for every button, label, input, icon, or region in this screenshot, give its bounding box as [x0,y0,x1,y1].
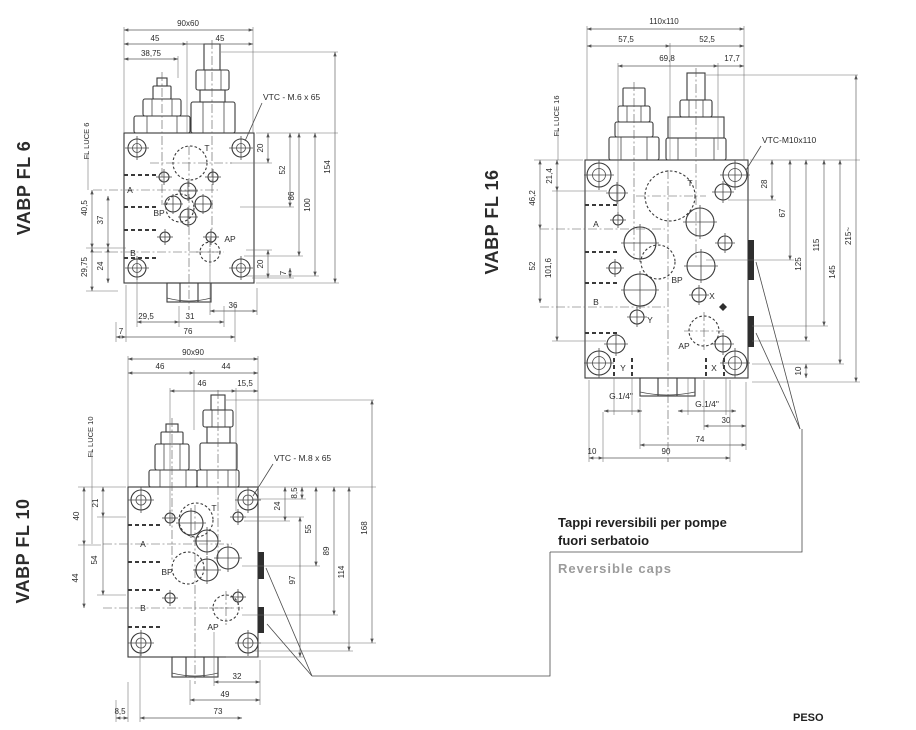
fl16-port-y: Y [647,315,653,325]
dim-label: 97 [288,575,297,584]
drawing-fl6: VABP FL 6 FL LUCE 6 [14,19,339,342]
dim-label: 101,6 [544,257,553,278]
fl6-port-b: B [130,248,136,258]
fl6-mount-hole [125,256,149,280]
fl6-left-dims: 40,5 37 29,75 24 [80,190,126,291]
fl6-port-a: A [127,185,133,195]
fl16-port-bp: BP [671,275,683,285]
dim-label: 37 [96,215,105,224]
dim-label: 30 [722,416,731,425]
fl10-cartridge-right [197,390,239,560]
fl10-port-bp: BP [161,567,173,577]
fl16-cross-hole [689,285,709,305]
fl16-vtc-label: VTC-M10x110 [762,135,816,145]
dim-label: 8,5 [114,707,126,716]
fl10-hole [176,508,206,538]
dim-label: 154 [323,160,332,174]
fl10-title: VABP FL 10 [13,498,33,603]
fl16-luce-label: FL LUCE 16 [552,96,561,137]
dim-label: 10 [588,447,597,456]
fl10-reversible-cap [258,552,264,579]
dim-label: 90 [662,447,671,456]
fl6-right-dims: 20 52 86 100 154 20 7 [230,52,339,283]
dim-label: 46,2 [528,190,537,206]
fl16-ring-hole [604,332,628,356]
dim-label: 24 [273,501,282,510]
fl10-mount-hole [235,487,261,513]
fl10-port-t-circle [179,503,213,537]
fl6-mount-hole [229,136,253,160]
dim-label: 21,4 [545,168,554,184]
fl16-cross-hole [627,307,647,327]
dim-label: 67 [778,208,787,217]
callout-text-italian-line2: fuori serbatoio [558,533,649,548]
dim-label: 90x60 [177,19,199,28]
fl16-port-x: X [709,291,715,301]
fl6-bp-cluster [163,181,213,227]
drawing-fl16: VABP FL 16 FL LUCE 16 [482,17,860,462]
fl16-cross-hole [606,259,624,277]
dim-label: 8,5 [290,487,299,499]
dim-label: 54 [90,555,99,564]
fl16-dot [719,303,727,311]
fl10-cross-hole [162,590,178,606]
fl10-port-bp-circle [172,552,204,584]
fl6-port-t: T [204,143,209,153]
peso-label: PESO [793,712,824,724]
datasheet-page: VABP FL 6 FL LUCE 6 [0,0,916,730]
dim-label: 110x110 [649,17,679,26]
fl16-cartridge-left [609,82,659,260]
fl10-port-t: T [211,503,216,513]
fl10-port-b: B [140,603,146,613]
fl16-left-dims: 21,4 46,2 52 101,6 [528,160,607,341]
fl16-reversible-cap [748,316,754,347]
dim-label: 28 [760,179,769,188]
fl10-vtc-label: VTC - M.8 x 65 [274,453,331,463]
callout-text-italian-line1: Tappi reversibili per pompe [558,515,727,530]
fl10-port-a: A [140,539,146,549]
fl6-luce-label: FL LUCE 6 [82,123,91,160]
fl10-right-dims: 8,5 24 55 89 97 114 168 [226,400,376,657]
dim-label: 7 [119,327,124,336]
dim-label: 29,5 [138,312,154,321]
dim-label: 24 [96,261,105,270]
fl16-hole [621,224,659,262]
fl16-port-ap: AP [678,341,690,351]
dim-label: 57,5 [618,35,634,44]
technical-drawing-canvas: VABP FL 6 FL LUCE 6 [0,0,916,730]
fl16-right-dims: 28 67 115 125 145 215~ 10 [706,75,860,382]
fl16-port-bp-circle [641,245,675,279]
fl16-title: VABP FL 16 [482,169,502,274]
dim-label: 46 [156,362,165,371]
fl6-cartridge-left [134,72,190,205]
fl10-reversible-cap [258,607,264,633]
dim-label: 145 [828,265,837,279]
dim-label: 55 [304,524,313,533]
dim-label: 52,5 [699,35,715,44]
fl6-cross-hole [156,169,172,185]
dim-label: 20 [256,259,265,268]
dim-label: 38,75 [141,49,162,58]
fl6-vtc-callout: VTC - M.6 x 65 [245,92,320,141]
fl6-valve-body [93,133,254,310]
fl16-hole [621,271,659,309]
dim-label: 7 [279,270,288,275]
dim-label: 46 [198,379,207,388]
fl10-hole [193,527,221,555]
fl16-port-y-bottom: Y [620,363,626,373]
fl16-hole [684,249,718,283]
dim-label: 89 [322,546,331,555]
dim-label: 40,5 [80,200,89,216]
dim-label: 15,5 [237,379,253,388]
dim-label: 73 [214,707,223,716]
dim-label: 114 [337,565,346,578]
dim-label: 31 [186,312,195,321]
dim-label: 44 [222,362,231,371]
dim-label: 45 [151,34,160,43]
fl6-mount-hole [125,136,149,160]
fl6-port-ap: AP [224,234,236,244]
dim-label: 20 [256,143,265,152]
fl16-port-t: T [687,178,692,188]
dim-label: 21 [91,498,100,507]
fl16-mount-hole [584,160,614,190]
fl6-vtc-label: VTC - M.6 x 65 [263,92,320,102]
fl16-mount-hole [720,160,750,190]
reversible-caps-callout: Tappi reversibili per pompe fuori serbat… [266,262,802,676]
dim-label: 90x90 [182,348,204,357]
fl10-mount-hole [128,487,154,513]
drawing-fl10: VABP FL 10 FL LUCE 10 [13,348,376,722]
dim-label: 52 [528,261,537,270]
fl16-port-x-bottom: X [711,363,717,373]
fl10-cross-hole [162,510,178,526]
fl6-title: VABP FL 6 [14,141,34,236]
callout-text-english: Reversible caps [558,561,672,576]
fl6-cartridge-right [191,40,235,230]
fl16-ring-hole [606,182,628,204]
fl10-mount-hole [235,630,261,656]
fl16-port-a: A [593,219,599,229]
fl10-luce-label: FL LUCE 10 [86,417,95,458]
fl10-cartridge-left [149,418,197,560]
dim-label: 215~ [844,227,853,245]
fl6-cross-hole [157,229,173,245]
dim-label: 168 [360,521,369,535]
fl10-valve-body [103,487,264,684]
dim-label: 44 [71,573,80,582]
fl10-left-dims: 21 40 54 44 [71,487,126,608]
dim-label: 100 [303,198,312,212]
dim-label: 40 [72,511,81,520]
dim-label: 86 [287,191,296,200]
fl16-hex-plug [640,378,695,396]
dim-label: 29,75 [80,256,89,277]
dim-label: 36 [229,301,238,310]
fl16-cross-hole [715,233,735,253]
fl10-port-ap: AP [207,622,219,632]
fl16-ring-hole [712,181,734,203]
dim-label: 10 [794,366,803,375]
fl6-cross-hole [205,169,221,185]
dim-label: 17,7 [724,54,740,63]
dim-label: 52 [278,165,287,174]
dim-label: 69,8 [659,54,675,63]
fl16-hole [683,205,717,239]
fl6-mount-hole [229,256,253,280]
fl10-cross-hole [230,509,246,525]
dim-label: 125 [794,257,803,271]
dim-label: 74 [696,435,705,444]
fl16-mount-hole [584,348,614,378]
fl10-mount-hole [128,630,154,656]
dim-label: 32 [233,672,242,681]
dim-label: 76 [184,327,193,336]
fl16-cartridge-right [666,68,726,260]
dim-label: 45 [216,34,225,43]
dim-label: 49 [221,690,230,699]
fl16-thread-g14-left: G.1/4" [609,391,633,401]
fl16-thread-g14-right: G.1/4" [695,399,719,409]
fl6-port-bp: BP [153,208,165,218]
fl16-port-b: B [593,297,599,307]
fl16-cross-hole [610,212,626,228]
dim-label: 115 [812,238,821,251]
